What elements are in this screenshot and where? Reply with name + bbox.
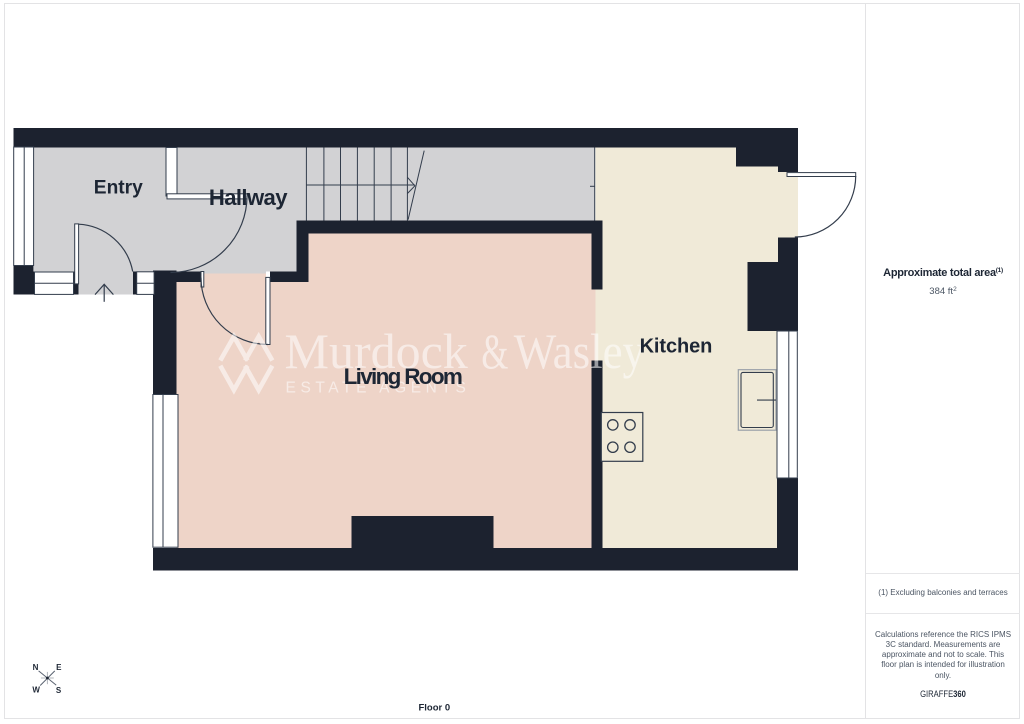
svg-text:Wasley: Wasley xyxy=(514,323,646,379)
svg-text:&: & xyxy=(481,323,508,379)
svg-text:Entry: Entry xyxy=(94,177,143,198)
svg-text:Hallway: Hallway xyxy=(209,185,288,210)
svg-text:W: W xyxy=(32,686,40,695)
svg-text:Kitchen: Kitchen xyxy=(640,335,713,357)
svg-text:N: N xyxy=(33,663,39,672)
svg-text:E: E xyxy=(56,663,62,672)
svg-text:S: S xyxy=(56,686,62,695)
svg-text:Floor 0: Floor 0 xyxy=(418,703,450,714)
svg-text:Living Room: Living Room xyxy=(344,364,462,389)
